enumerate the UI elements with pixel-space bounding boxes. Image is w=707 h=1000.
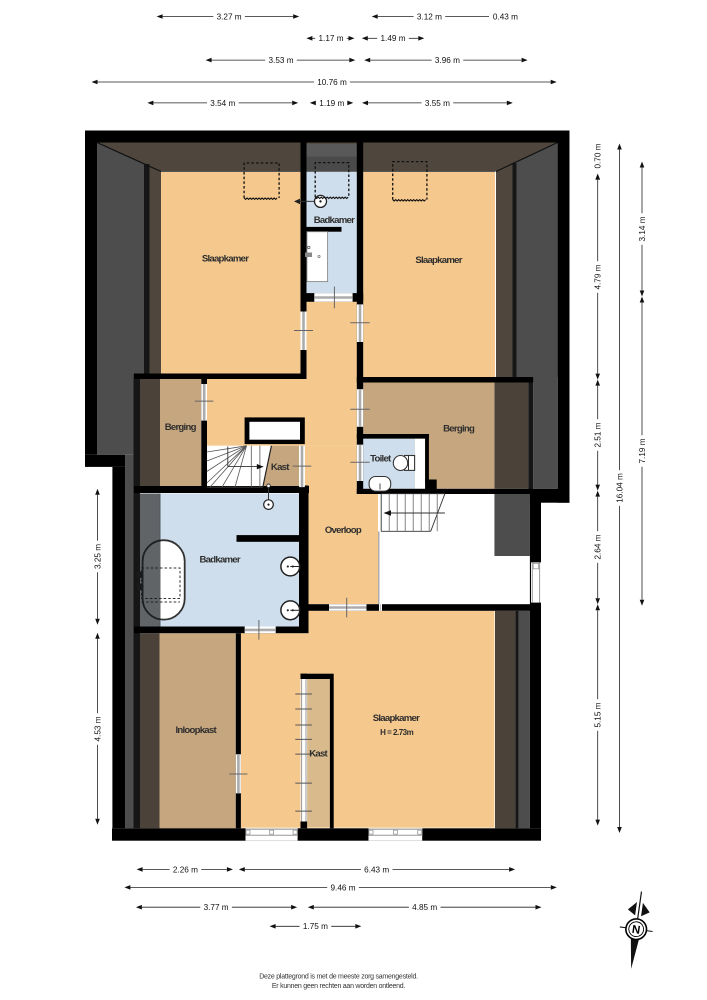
svg-text:3.12 m: 3.12 m [417, 12, 442, 21]
svg-text:Badkamer: Badkamer [199, 555, 240, 566]
svg-text:1.49 m: 1.49 m [380, 34, 405, 43]
svg-text:1.75 m: 1.75 m [303, 922, 328, 931]
svg-text:Slaapkamer: Slaapkamer [415, 255, 462, 266]
svg-text:5.15 m: 5.15 m [594, 702, 603, 727]
svg-text:9.46 m: 9.46 m [330, 883, 355, 892]
svg-text:10.76 m: 10.76 m [317, 78, 347, 87]
svg-text:2.26 m: 2.26 m [173, 865, 198, 874]
svg-text:Kast: Kast [309, 749, 328, 760]
svg-text:Slaapkamer: Slaapkamer [202, 253, 249, 264]
svg-text:4.53 m: 4.53 m [93, 716, 102, 741]
svg-text:3.14 m: 3.14 m [638, 216, 647, 241]
svg-text:3.77 m: 3.77 m [204, 903, 229, 912]
svg-text:H = 2.73m: H = 2.73m [380, 728, 413, 737]
svg-text:6.43 m: 6.43 m [364, 865, 389, 874]
svg-text:Er kunnen geen rechten aan wor: Er kunnen geen rechten aan worden ontlee… [272, 983, 406, 990]
svg-text:3.54 m: 3.54 m [210, 99, 235, 108]
svg-text:Toilet: Toilet [370, 454, 392, 465]
svg-text:Badkamer: Badkamer [314, 215, 355, 226]
svg-text:Kast: Kast [271, 462, 290, 473]
svg-text:N: N [631, 924, 641, 937]
svg-text:1.17 m: 1.17 m [318, 34, 343, 43]
svg-text:Berging: Berging [165, 422, 197, 433]
svg-text:Inloopkast: Inloopkast [175, 725, 217, 736]
svg-text:4.79 m: 4.79 m [594, 264, 603, 289]
svg-text:2.64 m: 2.64 m [594, 534, 603, 559]
svg-text:4.85 m: 4.85 m [412, 903, 437, 912]
svg-text:3.53 m: 3.53 m [268, 56, 293, 65]
svg-text:3.27 m: 3.27 m [217, 12, 242, 21]
svg-text:3.96 m: 3.96 m [435, 56, 460, 65]
svg-text:Deze plattegrond is met de mee: Deze plattegrond is met de meeste zorg s… [259, 974, 418, 981]
svg-text:3.55 m: 3.55 m [425, 99, 450, 108]
svg-text:0.43 m: 0.43 m [493, 12, 518, 21]
svg-text:Berging: Berging [443, 424, 475, 435]
svg-text:1.19 m: 1.19 m [319, 99, 344, 108]
svg-text:3.25 m: 3.25 m [93, 544, 102, 569]
svg-text:2.51 m: 2.51 m [594, 422, 603, 447]
svg-text:7.19 m: 7.19 m [638, 438, 647, 463]
svg-text:0.70 m: 0.70 m [594, 143, 603, 168]
svg-text:16.04 m: 16.04 m [615, 473, 624, 503]
svg-text:Slaapkamer: Slaapkamer [373, 713, 420, 724]
svg-text:Overloop: Overloop [325, 525, 362, 536]
